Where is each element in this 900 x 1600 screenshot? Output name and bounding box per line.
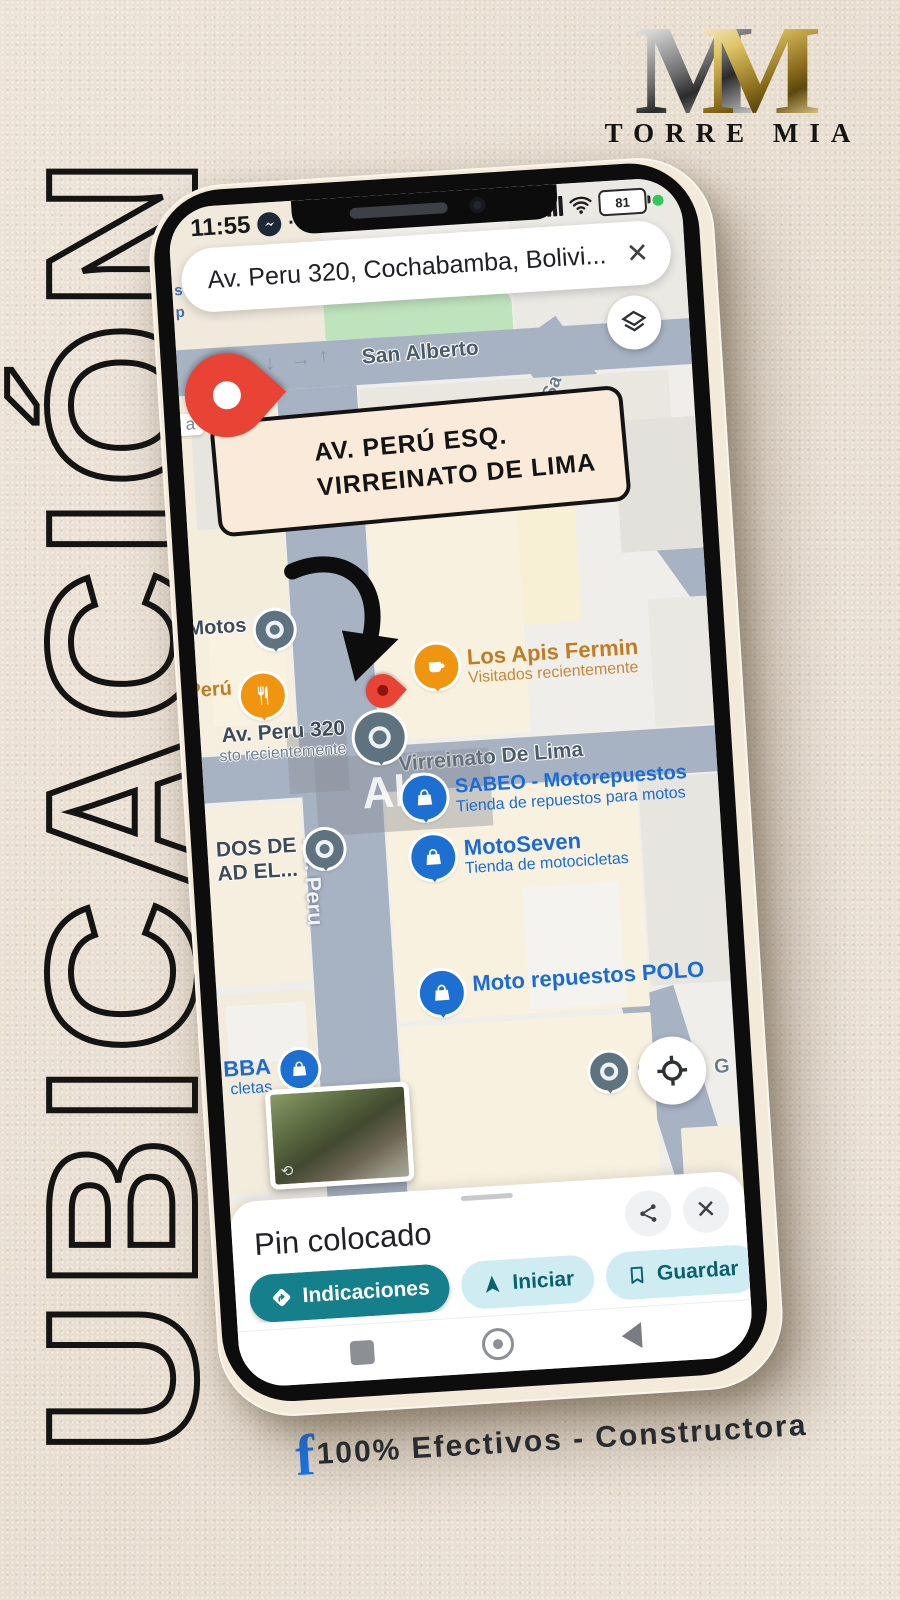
sheet-title: Pin colocado [253, 1216, 432, 1263]
dot-icon [368, 726, 391, 749]
facebook-page-name: 100% Efectivos - Constructora [316, 1409, 809, 1472]
layers-icon [619, 308, 649, 338]
messenger-icon [257, 212, 282, 237]
map-pin-icon [589, 1051, 629, 1091]
navigation-arrow-icon [481, 1273, 504, 1296]
wifi-icon [568, 194, 593, 215]
monogram-m-gold: M [701, 6, 822, 134]
map-block [648, 596, 715, 727]
dot-icon [315, 839, 334, 858]
promo-poster: UBICACIÓN MM TORRE MIA [0, 0, 900, 1600]
crosshair-icon [654, 1053, 690, 1089]
share-icon [636, 1202, 659, 1225]
phone-bezel: San Alberto Sa Virreinato De Lima Av. Pe… [150, 159, 771, 1405]
battery-icon: 81 [598, 188, 648, 217]
share-button[interactable] [624, 1189, 673, 1238]
bag-icon [422, 846, 445, 869]
phone-mockup: San Alberto Sa Virreinato De Lima Av. Pe… [145, 153, 787, 1420]
map-block [517, 504, 582, 625]
close-button[interactable]: ✕ [682, 1185, 731, 1234]
restaurant-pin-icon [240, 672, 287, 719]
location-pin-large [182, 351, 271, 440]
map-pin-icon [353, 711, 406, 764]
road-arrow-up: ↑ [318, 345, 329, 369]
poi-name: BBA [222, 1054, 271, 1082]
start-navigation-button[interactable]: Iniciar [460, 1254, 596, 1310]
clear-search-icon[interactable]: ✕ [615, 237, 650, 270]
start-label: Iniciar [512, 1267, 575, 1295]
shopping-bag-pin-icon [410, 834, 457, 881]
recents-button[interactable] [350, 1340, 375, 1365]
save-button[interactable]: Guardar [605, 1244, 755, 1301]
brand-logo: MM TORRE MIA [578, 6, 878, 149]
battery-percent: 81 [615, 194, 630, 210]
poi-name-line2: AD EL... [217, 858, 299, 887]
poi-name: Perú [187, 678, 233, 704]
front-camera [469, 197, 486, 214]
drag-handle[interactable] [461, 1193, 513, 1201]
search-input[interactable]: Av. Peru 320, Cochabamba, Bolivi... [207, 240, 617, 295]
cup-icon [425, 655, 448, 678]
shopping-bag-pin-icon [279, 1049, 319, 1089]
camera-indicator-dot [652, 194, 664, 206]
dot-icon [600, 1062, 619, 1081]
brand-monogram: MM [578, 6, 878, 134]
speaker-grille [349, 202, 447, 219]
clipped-label: p [175, 304, 185, 322]
annotation-arrow-icon [275, 551, 405, 690]
bag-icon [430, 981, 453, 1004]
bag-icon [413, 786, 436, 809]
road-arrow-right: → [290, 348, 311, 372]
rotate-icon: ⟲ [280, 1162, 294, 1181]
back-button[interactable] [621, 1322, 643, 1349]
footer-social: f 100% Efectivos - Constructora [294, 1403, 809, 1480]
directions-label: Indicaciones [302, 1276, 430, 1308]
home-button[interactable] [481, 1327, 515, 1361]
phone-screen: San Alberto Sa Virreinato De Lima Av. Pe… [167, 176, 754, 1388]
map-block [205, 801, 312, 987]
poi-peru-restaurant[interactable]: Perú [187, 672, 287, 722]
shopping-bag-pin-icon [401, 774, 448, 821]
facebook-icon: f [294, 1432, 316, 1479]
clock: 11:55 [190, 211, 252, 243]
brand-name: TORRE MIA [578, 118, 878, 149]
poi-dos-de[interactable]: DOS DE AD EL... [193, 829, 346, 889]
shopping-bag-pin-icon [419, 970, 466, 1017]
cafe-pin-icon [413, 643, 460, 690]
directions-button[interactable]: Indicaciones [248, 1263, 451, 1323]
clipped-label-g: G [713, 1055, 730, 1079]
poi-name: Motos [187, 614, 247, 641]
save-label: Guardar [656, 1257, 739, 1286]
bag-icon [288, 1058, 309, 1079]
fork-knife-icon [252, 684, 275, 707]
bookmark-icon [625, 1264, 648, 1287]
directions-icon [269, 1285, 294, 1310]
map-pin-icon [304, 829, 344, 869]
close-icon: ✕ [695, 1194, 718, 1225]
street-view-thumbnail[interactable]: ⟲ [265, 1081, 415, 1190]
